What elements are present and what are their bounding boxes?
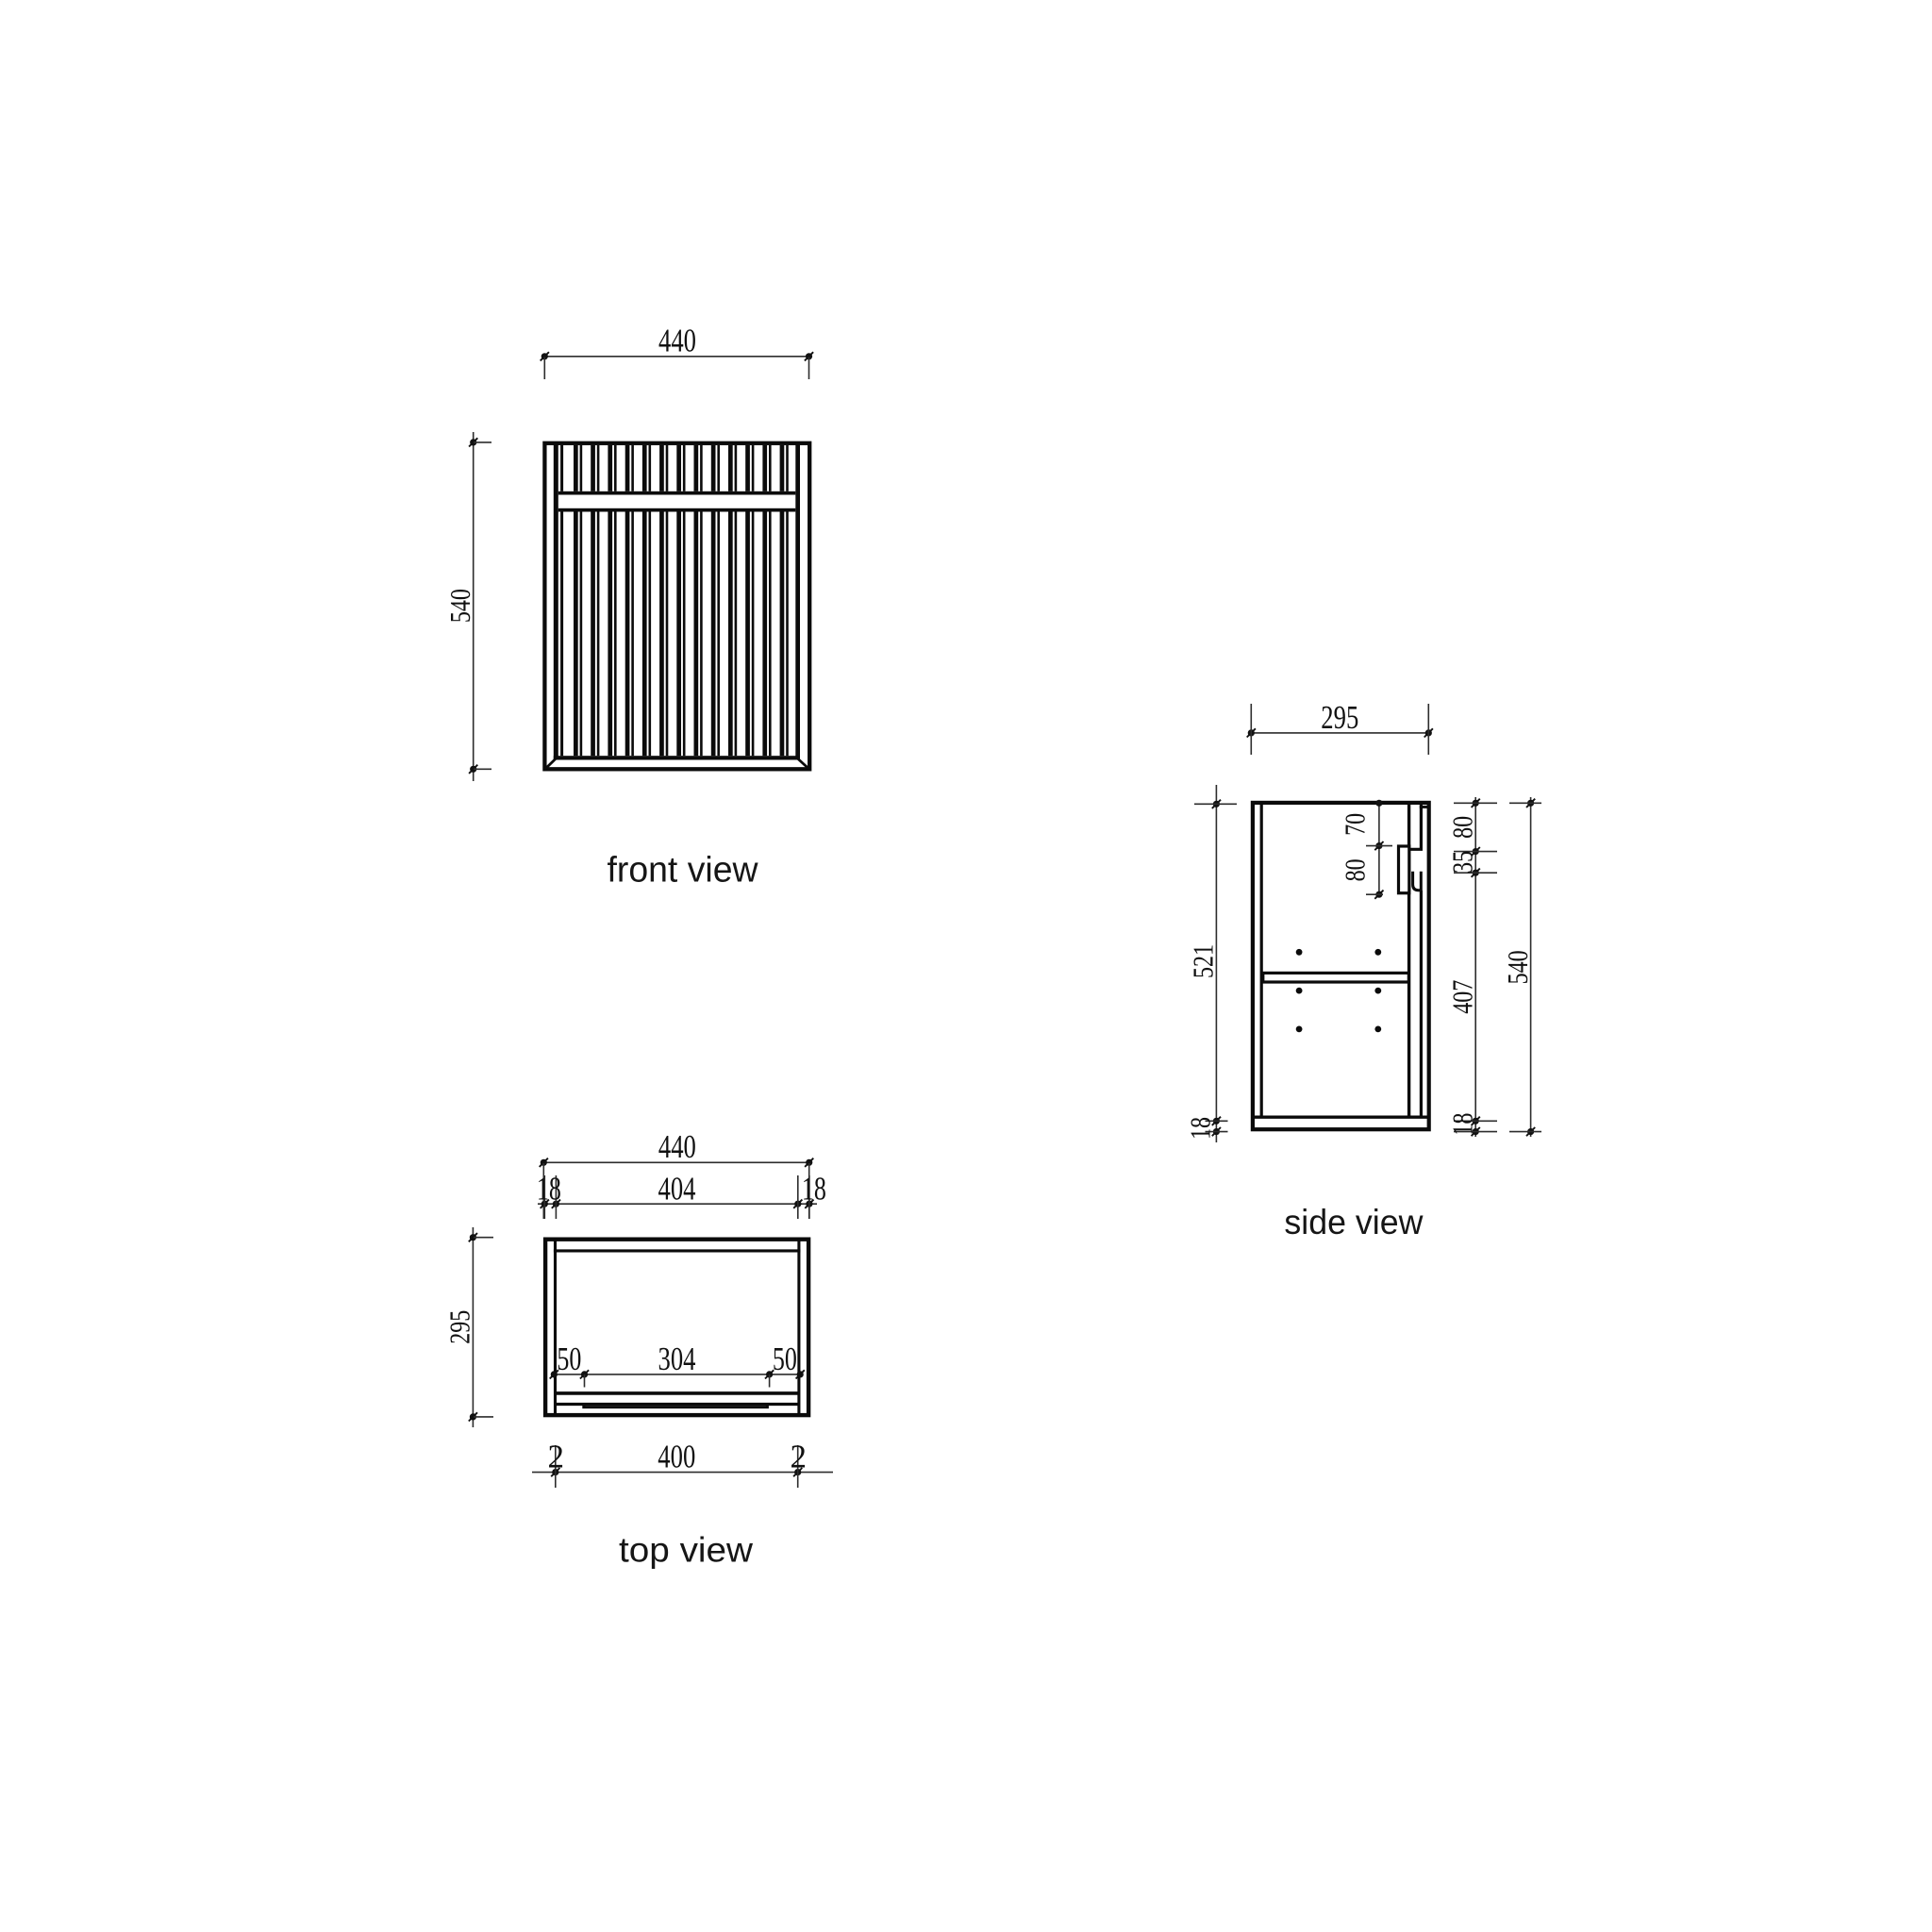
- svg-text:35: 35: [1445, 851, 1478, 874]
- svg-text:70: 70: [1338, 813, 1371, 836]
- svg-text:295: 295: [1321, 699, 1358, 736]
- svg-text:2: 2: [790, 1438, 807, 1474]
- svg-text:80: 80: [1445, 816, 1478, 839]
- svg-text:side view: side view: [1284, 1203, 1423, 1241]
- svg-text:18: 18: [537, 1171, 561, 1207]
- svg-text:404: 404: [658, 1171, 696, 1207]
- svg-text:440: 440: [658, 322, 696, 358]
- svg-text:50: 50: [557, 1341, 581, 1377]
- svg-text:2: 2: [548, 1438, 565, 1474]
- svg-text:80: 80: [1338, 858, 1371, 881]
- svg-text:front view: front view: [608, 850, 759, 890]
- svg-text:440: 440: [658, 1128, 696, 1165]
- svg-text:540: 540: [1501, 950, 1534, 984]
- svg-text:540: 540: [443, 589, 476, 623]
- svg-text:521: 521: [1187, 944, 1220, 978]
- svg-text:18: 18: [802, 1171, 826, 1207]
- svg-text:304: 304: [658, 1341, 696, 1377]
- svg-text:50: 50: [773, 1341, 797, 1377]
- svg-text:18: 18: [1445, 1113, 1478, 1136]
- svg-text:407: 407: [1445, 980, 1478, 1014]
- svg-text:18: 18: [1184, 1117, 1217, 1140]
- svg-text:top view: top view: [619, 1531, 753, 1570]
- svg-text:295: 295: [443, 1310, 476, 1344]
- svg-text:400: 400: [658, 1438, 695, 1474]
